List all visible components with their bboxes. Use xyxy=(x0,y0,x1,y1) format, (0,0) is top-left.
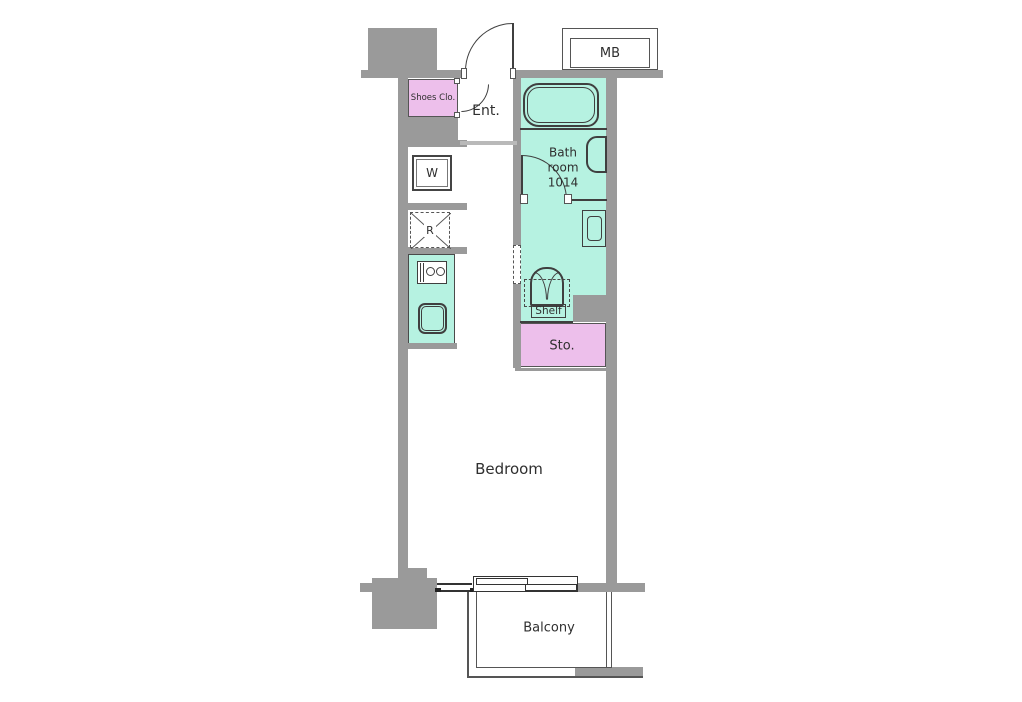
entrance-step-edge xyxy=(460,141,517,145)
stove-burner-left xyxy=(426,267,435,276)
wall-top-bar-left xyxy=(361,70,461,78)
stove-grill-line-1 xyxy=(420,263,421,282)
stove-burner-right xyxy=(436,267,445,276)
wall-bottom-pillar-step xyxy=(398,568,427,578)
wall-bottom-pillar-tab xyxy=(360,583,372,592)
toilet-shelf: Shelf xyxy=(531,304,566,318)
wall-mid-upper xyxy=(513,70,521,245)
washroom-folding-door xyxy=(513,245,521,284)
wall-left xyxy=(398,78,408,568)
sliding-window-panel-left xyxy=(476,578,528,585)
entrance-door-swing-icon xyxy=(465,23,513,71)
fridge-space: R xyxy=(410,212,450,248)
shoes-closet-hinge-top xyxy=(454,78,460,84)
meter-box-label: MB xyxy=(600,46,620,61)
wall-top-left-pillar xyxy=(368,28,437,70)
wall-bottom-right-bar xyxy=(575,583,645,592)
bathroom-label-line3: 1014 xyxy=(547,176,578,191)
bathroom-label-line2: room xyxy=(547,161,578,176)
wall-stub-2 xyxy=(398,203,467,210)
wall-under-storage xyxy=(515,368,617,371)
floor-plan: MB Shelf W R xyxy=(0,0,1022,702)
entrance-door-jamb-left xyxy=(461,68,467,79)
wall-top-bar-right xyxy=(516,70,663,78)
stove-grill-line-2 xyxy=(423,263,424,282)
small-window-tick-left xyxy=(435,588,441,592)
wall-bottom-pillar xyxy=(372,578,437,629)
wall-right xyxy=(606,78,617,592)
balcony-label: Balcony xyxy=(523,621,575,636)
wall-toilet-side xyxy=(573,295,606,322)
shoes-closet-hinge-bottom xyxy=(454,112,460,118)
entrance-door-jamb-right xyxy=(510,68,516,79)
balcony-rail-outer-bottom xyxy=(467,676,643,678)
fridge-label: R xyxy=(424,224,436,237)
balcony-rail-right-b xyxy=(611,592,612,668)
wall-mid-lower xyxy=(513,284,521,368)
entrance-label: Ent. xyxy=(472,103,500,119)
balcony-rail-right-a xyxy=(606,592,607,668)
shoes-closet-label: Shoes Clo. xyxy=(411,93,455,103)
bathroom-label: Bath room 1014 xyxy=(547,146,578,191)
sliding-window-panel-right xyxy=(525,584,577,591)
bathroom-door-jamb-right xyxy=(564,194,572,204)
bathtub-platform-edge xyxy=(520,128,607,130)
wall-kitchen-bottom xyxy=(398,343,457,349)
bathroom-door-jamb-left xyxy=(520,194,528,204)
bathtub-inner xyxy=(527,87,595,123)
bathroom-label-line1: Bath xyxy=(547,146,578,161)
small-window xyxy=(437,583,472,592)
balcony-rail-inner-left xyxy=(476,592,477,668)
balcony-rail-inner-bottom xyxy=(476,667,612,668)
storage-label: Sto. xyxy=(549,339,574,354)
bathroom-partition xyxy=(572,199,607,201)
washer-space-inner: W xyxy=(416,159,448,187)
vanity-basin-icon xyxy=(587,216,602,241)
wall-stub-1 xyxy=(398,140,467,147)
meter-box: MB xyxy=(570,38,650,68)
balcony-rail-outer-left xyxy=(467,592,469,678)
washroom-extension-bottom-edge xyxy=(520,321,573,323)
washbasin-icon xyxy=(586,136,607,173)
shelf-label: Shelf xyxy=(535,305,561,317)
bedroom-label: Bedroom xyxy=(475,460,543,478)
kitchen-sink-inner xyxy=(421,306,444,331)
washer-label: W xyxy=(426,166,438,180)
